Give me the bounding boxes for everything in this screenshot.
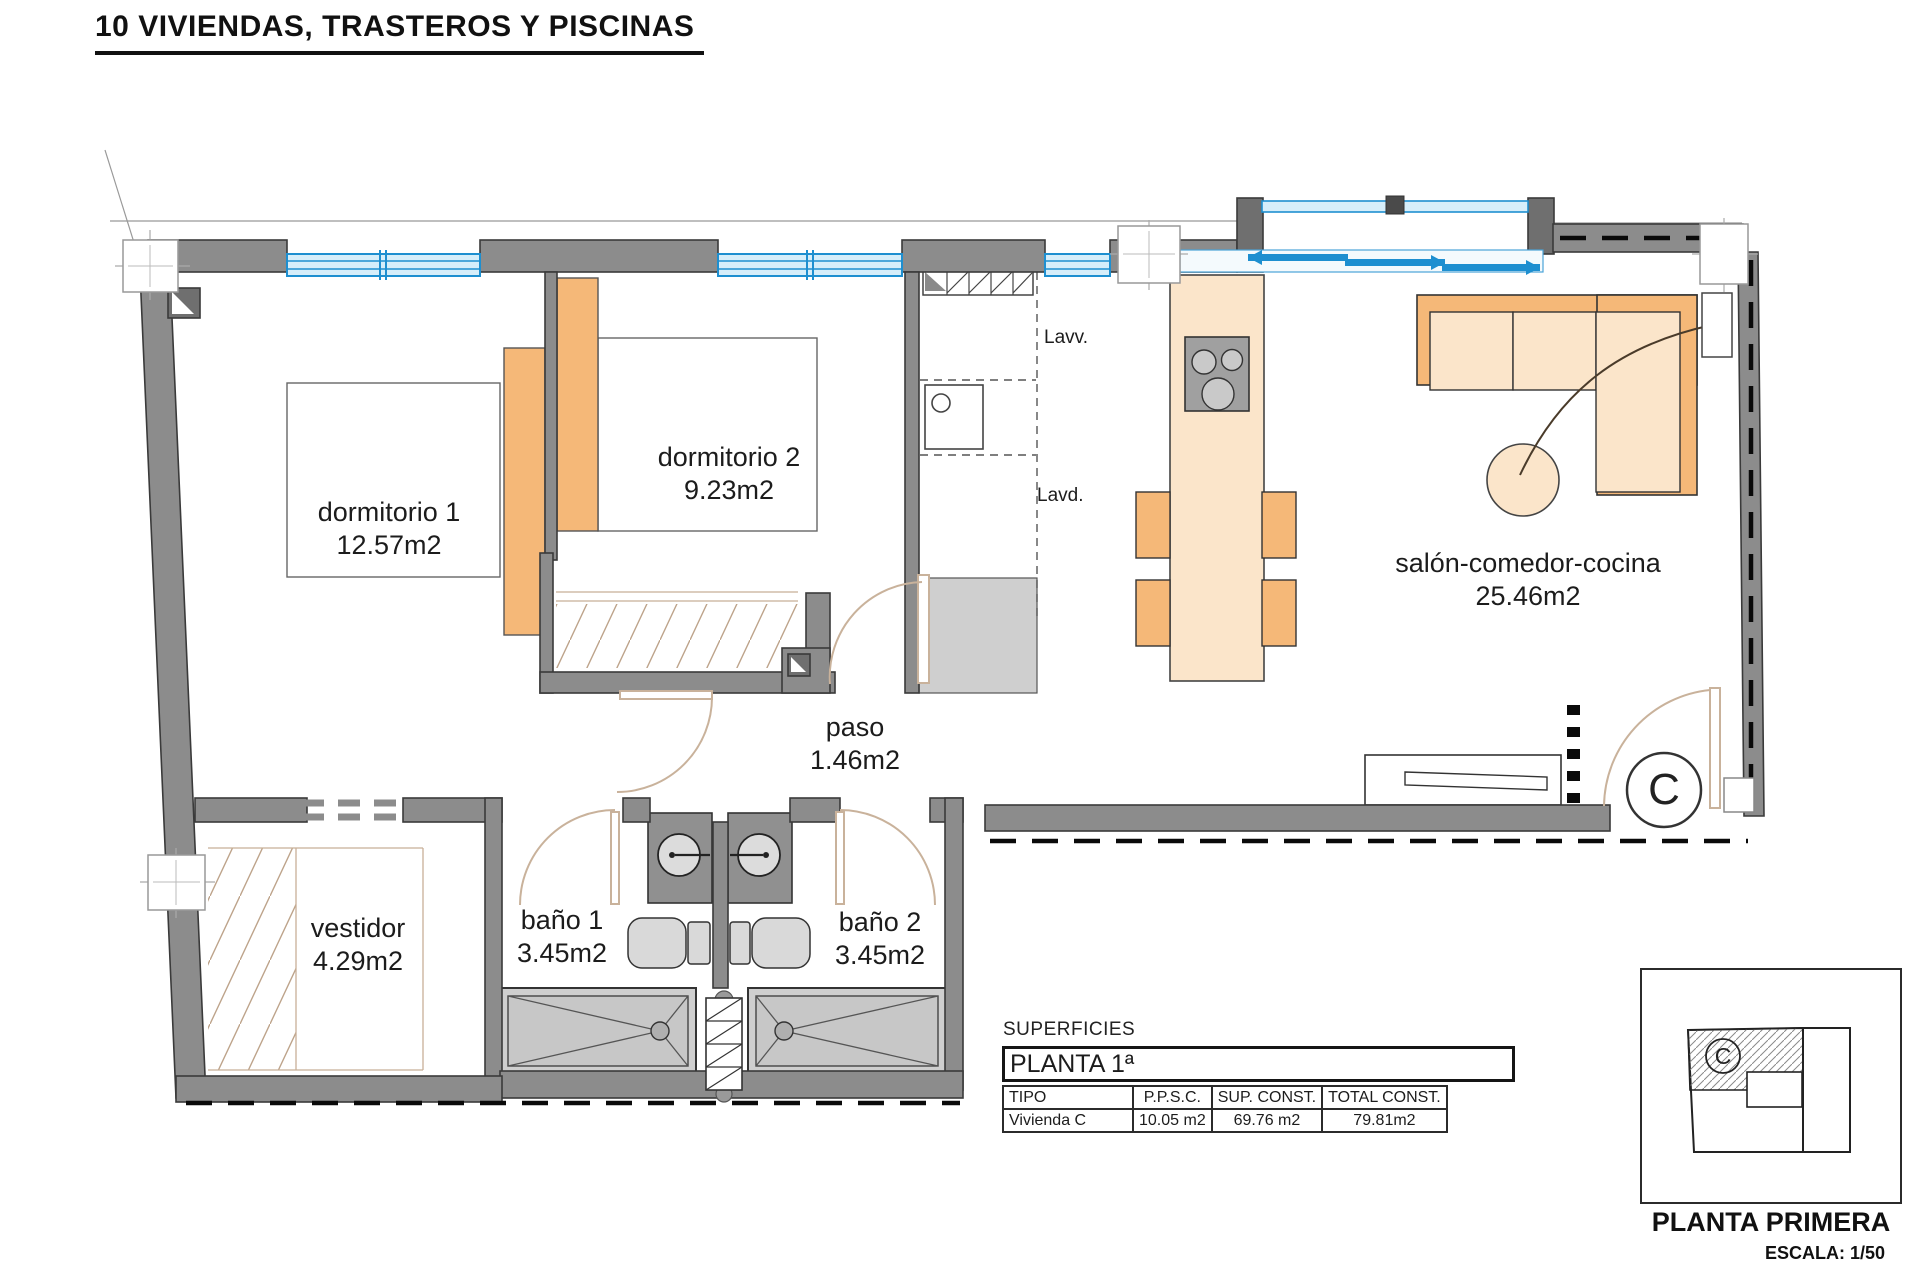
floorplan-drawing: [0, 0, 1920, 1280]
col-total-const: TOTAL CONST.: [1322, 1086, 1447, 1109]
label-lavd: Lavd.: [1037, 485, 1083, 507]
room-label-salon: salón-comedor-cocina25.46m2: [1368, 547, 1688, 613]
keyplan-box: [1640, 968, 1902, 1204]
vanity-bano1: [648, 813, 712, 903]
vestidor-dashed-opening: [302, 803, 406, 817]
laundry-closet: [919, 270, 1037, 693]
wardrobe-dorm2: [556, 592, 798, 668]
window-kitchen: [1045, 254, 1110, 276]
room-label-dormitorio1: dormitorio 112.57m2: [269, 496, 509, 562]
kitchen-island: [1136, 275, 1296, 681]
window-dorm1: [287, 250, 480, 280]
side-table-round: [1487, 444, 1559, 516]
wall-side-table: [1702, 293, 1732, 357]
surfaces-table-header-row: TIPO P.P.S.C. SUP. CONST. TOTAL CONST.: [1003, 1086, 1447, 1109]
sliding-door: [1180, 250, 1543, 275]
col-sup-const: SUP. CONST.: [1212, 1086, 1322, 1109]
surfaces-table-row: Vivienda C 10.05 m2 69.76 m2 79.81m2: [1003, 1109, 1447, 1132]
terrace-glazing: [1262, 196, 1528, 214]
keyplan-title: PLANTA PRIMERA: [1640, 1207, 1902, 1238]
floor-label-box: PLANTA 1ª: [1002, 1046, 1515, 1082]
surfaces-heading: SUPERFICIES: [1003, 1019, 1135, 1041]
room-label-paso: paso1.46m2: [771, 711, 939, 777]
door-bano2: [836, 810, 935, 905]
keyplan-scale: ESCALA: 1/50: [1640, 1243, 1885, 1264]
shower-bano1: [500, 988, 696, 1074]
cell-ppsc: 10.05 m2: [1133, 1109, 1212, 1132]
tv-sideboard: [1365, 755, 1561, 805]
cell-vivienda: Vivienda C: [1003, 1109, 1133, 1132]
surfaces-table: TIPO P.P.S.C. SUP. CONST. TOTAL CONST. V…: [1002, 1085, 1448, 1133]
col-tipo: TIPO: [1003, 1086, 1133, 1109]
label-lavv: Lavv.: [1044, 327, 1088, 349]
shelf-hatch: [923, 270, 1033, 295]
room-label-bano2: baño 23.45m2: [788, 906, 972, 972]
room-label-vestidor: vestidor4.29m2: [256, 912, 460, 978]
sofa: [1417, 295, 1697, 495]
washer: [925, 385, 983, 449]
shower-bano2: [748, 988, 946, 1074]
shaft: [706, 991, 742, 1102]
door-bano1: [520, 810, 619, 905]
cell-total-const: 79.81m2: [1322, 1109, 1447, 1132]
unit-letter: C: [1634, 762, 1694, 818]
entry-dotted-line: [1567, 705, 1580, 803]
room-label-dormitorio2: dormitorio 29.23m2: [609, 441, 849, 507]
door-dorm1: [617, 691, 712, 792]
cell-sup-const: 69.76 m2: [1212, 1109, 1322, 1132]
col-ppsc: P.P.S.C.: [1133, 1086, 1212, 1109]
keyplan-letter: C: [1705, 1042, 1741, 1070]
bed-dorm1: [287, 348, 545, 635]
room-label-bano1: baño 13.45m2: [470, 904, 654, 970]
vanity-bano2: [728, 813, 792, 903]
window-dorm2: [718, 250, 902, 280]
floorplan-page: 10 VIVIENDAS, TRASTEROS Y PISCINAS: [0, 0, 1920, 1280]
